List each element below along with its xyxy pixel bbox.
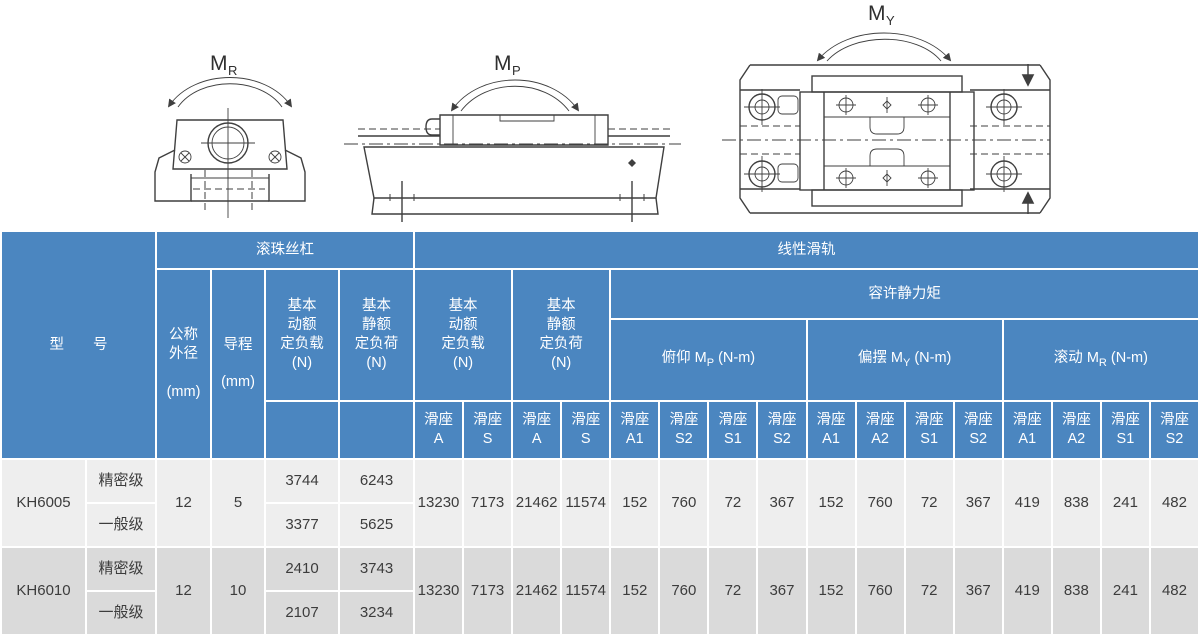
value-cell: 11574 bbox=[561, 459, 610, 547]
mp-arrow bbox=[452, 80, 578, 110]
header-roll-moment: 滚动 MR (N-m) bbox=[1003, 319, 1199, 401]
header-seat: 滑座 A1 bbox=[610, 401, 659, 459]
header-seat: 滑座 A1 bbox=[807, 401, 856, 459]
my-label: MY bbox=[868, 2, 895, 28]
grade-cell: 一般级 bbox=[86, 503, 156, 547]
my-arrow bbox=[818, 33, 950, 60]
value-cell: 152 bbox=[807, 459, 856, 547]
support-rail-outline bbox=[364, 147, 664, 198]
value-cell: 152 bbox=[610, 547, 659, 635]
nut-block-outline bbox=[440, 115, 608, 145]
value-cell: 21462 bbox=[512, 459, 561, 547]
header-lr-dynamic-load: 基本 动额 定负载 (N) bbox=[414, 269, 512, 401]
header-bs-dynamic-load: 基本 动额 定负载 (N) bbox=[265, 269, 339, 401]
header-lr-static-load: 基本 静额 定负荷 (N) bbox=[512, 269, 610, 401]
header-seat: 滑座 A2 bbox=[1052, 401, 1101, 459]
header-seat: 滑座 S2 bbox=[954, 401, 1003, 459]
header-seat: 滑座 A1 bbox=[1003, 401, 1052, 459]
mr-arrow bbox=[169, 78, 291, 107]
value-cell: 12 bbox=[156, 459, 211, 547]
table-row: KH6005 精密级 12 5 3744 6243 13230 7173 214… bbox=[1, 459, 1199, 503]
value-cell: 11574 bbox=[561, 547, 610, 635]
header-seat: 滑座 S2 bbox=[659, 401, 708, 459]
value-cell: 3744 bbox=[265, 459, 339, 503]
value-cell: 419 bbox=[1003, 547, 1052, 635]
diagram-banner: MR MP MY bbox=[0, 0, 1200, 230]
model-cell: KH6005 bbox=[1, 459, 86, 547]
header-seat: 滑座 S1 bbox=[708, 401, 757, 459]
value-cell: 419 bbox=[1003, 459, 1052, 547]
header-pitch-moment: 俯仰 MP (N-m) bbox=[610, 319, 806, 401]
value-cell: 10 bbox=[211, 547, 265, 635]
header-lead: 导程 (mm) bbox=[211, 269, 265, 459]
value-cell: 7173 bbox=[463, 459, 512, 547]
value-cell: 2410 bbox=[265, 547, 339, 591]
header-seat: 滑座 S bbox=[463, 401, 512, 459]
value-cell: 760 bbox=[856, 459, 905, 547]
mp-label: MP bbox=[494, 52, 521, 78]
header-yaw-moment: 偏摆 MY (N-m) bbox=[807, 319, 1003, 401]
value-cell: 241 bbox=[1101, 459, 1150, 547]
value-cell: 482 bbox=[1150, 459, 1199, 547]
value-cell: 367 bbox=[954, 459, 1003, 547]
header-seat: 滑座 A bbox=[414, 401, 463, 459]
value-cell: 760 bbox=[659, 459, 708, 547]
header-seat: 滑座 S1 bbox=[905, 401, 954, 459]
slide-block bbox=[778, 76, 974, 206]
header-seat: 滑座 S bbox=[561, 401, 610, 459]
header-linear-rail: 线性滑轨 bbox=[414, 231, 1199, 269]
value-cell: 6243 bbox=[339, 459, 414, 503]
value-cell: 3234 bbox=[339, 591, 414, 635]
value-cell: 367 bbox=[757, 459, 806, 547]
value-cell: 72 bbox=[708, 547, 757, 635]
header-seat: 滑座 S2 bbox=[757, 401, 806, 459]
table-row: KH6010 精密级 12 10 2410 3743 13230 7173 21… bbox=[1, 547, 1199, 591]
header-model: 型 号 bbox=[1, 231, 156, 459]
grade-cell: 一般级 bbox=[86, 591, 156, 635]
value-cell: 2107 bbox=[265, 591, 339, 635]
value-cell: 367 bbox=[757, 547, 806, 635]
value-cell: 482 bbox=[1150, 547, 1199, 635]
value-cell: 21462 bbox=[512, 547, 561, 635]
header-nominal-od: 公称 外径 (mm) bbox=[156, 269, 211, 459]
value-cell: 152 bbox=[610, 459, 659, 547]
header-bs-static-load: 基本 静额 定负荷 (N) bbox=[339, 269, 414, 401]
empty-header-cell bbox=[265, 401, 339, 459]
spec-table: 型 号 滚珠丝杠 线性滑轨 公称 外径 (mm) 导程 (mm) 基本 动额 定… bbox=[0, 230, 1200, 636]
value-cell: 760 bbox=[659, 547, 708, 635]
value-cell: 5625 bbox=[339, 503, 414, 547]
mr-label: MR bbox=[210, 52, 238, 78]
value-cell: 13230 bbox=[414, 547, 463, 635]
value-cell: 72 bbox=[905, 547, 954, 635]
header-seat: 滑座 S1 bbox=[1101, 401, 1150, 459]
value-cell: 12 bbox=[156, 547, 211, 635]
value-cell: 241 bbox=[1101, 547, 1150, 635]
value-cell: 72 bbox=[708, 459, 757, 547]
value-cell: 13230 bbox=[414, 459, 463, 547]
value-cell: 760 bbox=[856, 547, 905, 635]
my-diagram bbox=[720, 0, 1052, 228]
header-static-moment: 容许静力矩 bbox=[610, 269, 1199, 319]
value-cell: 3743 bbox=[339, 547, 414, 591]
rail-outline bbox=[740, 65, 1050, 213]
value-cell: 838 bbox=[1052, 459, 1101, 547]
value-cell: 367 bbox=[954, 547, 1003, 635]
grade-cell: 精密级 bbox=[86, 547, 156, 591]
value-cell: 5 bbox=[211, 459, 265, 547]
grade-cell: 精密级 bbox=[86, 459, 156, 503]
empty-header-cell bbox=[339, 401, 414, 459]
header-seat: 滑座 A bbox=[512, 401, 561, 459]
value-cell: 7173 bbox=[463, 547, 512, 635]
header-ball-screw: 滚珠丝杠 bbox=[156, 231, 414, 269]
value-cell: 72 bbox=[905, 459, 954, 547]
header-seat: 滑座 A2 bbox=[856, 401, 905, 459]
value-cell: 838 bbox=[1052, 547, 1101, 635]
value-cell: 152 bbox=[807, 547, 856, 635]
header-seat: 滑座 S2 bbox=[1150, 401, 1199, 459]
value-cell: 3377 bbox=[265, 503, 339, 547]
model-cell: KH6010 bbox=[1, 547, 86, 635]
